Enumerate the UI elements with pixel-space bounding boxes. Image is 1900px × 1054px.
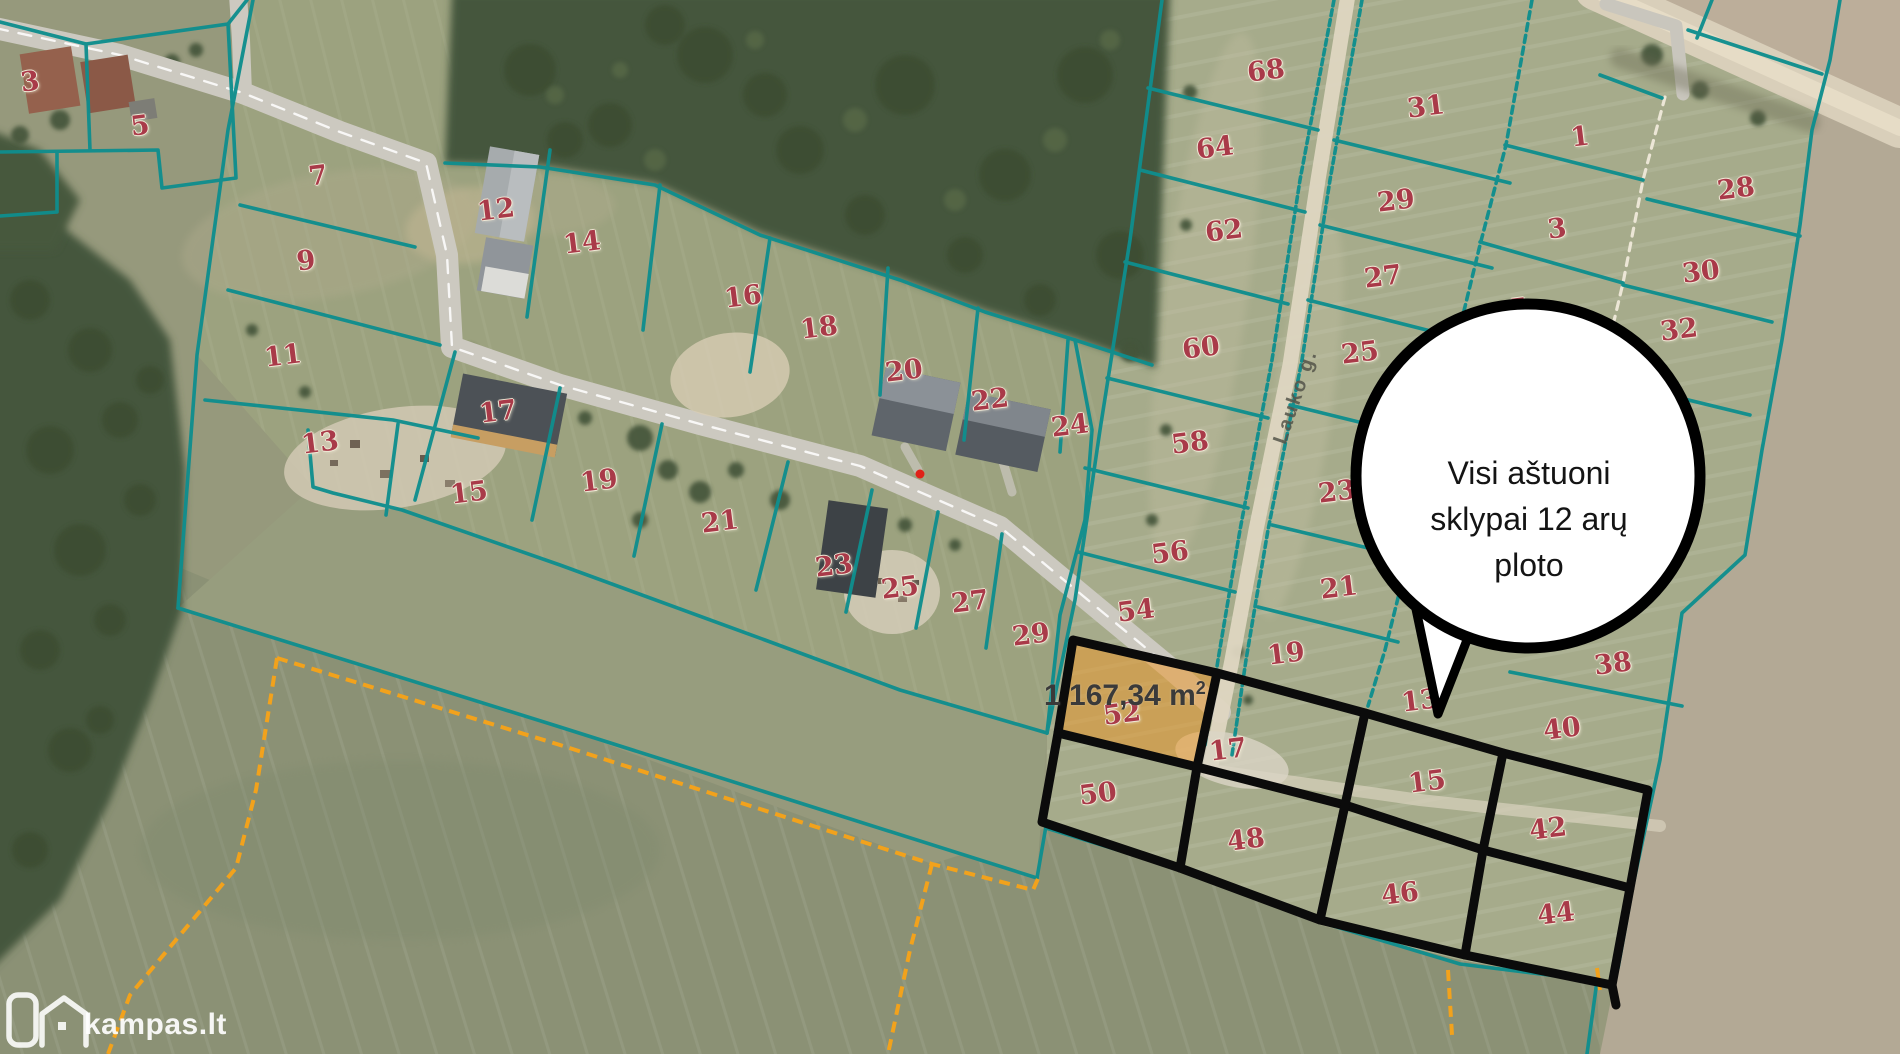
aerial-basemap bbox=[0, 0, 1900, 1054]
cadastral-map-image: 3579111315121416182022241719212325272968… bbox=[0, 0, 1900, 1054]
survey-point-dot bbox=[916, 470, 925, 479]
